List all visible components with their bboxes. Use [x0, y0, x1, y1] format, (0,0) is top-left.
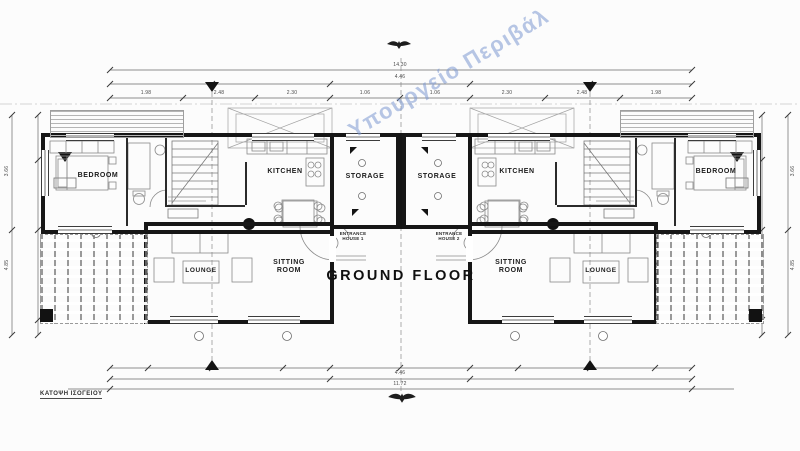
window — [502, 316, 554, 324]
partition — [165, 205, 245, 207]
house2-upper-block-walls — [468, 133, 761, 234]
dim-bottom-sub: 4.46 — [380, 370, 420, 376]
window — [248, 316, 300, 324]
window — [41, 150, 49, 196]
room-label-storage-right: STORAGE — [397, 173, 477, 181]
dim-right-2: 4.85 — [790, 250, 796, 280]
dim-right-1: 3.66 — [790, 156, 796, 186]
partition — [557, 205, 637, 207]
stamp-emblem-icon-top — [387, 41, 411, 49]
entrance-label-house2: ENTRANCE HOUSE 2 — [432, 231, 466, 241]
terrace-pergola-left — [40, 234, 148, 324]
partition — [674, 137, 676, 226]
partition — [126, 137, 128, 226]
canopy-slats-right — [620, 110, 754, 138]
dim-bottom-total: 11.72 — [380, 381, 420, 387]
dim-seg: 1.98 — [641, 90, 671, 96]
dim-left-2: 4.85 — [4, 250, 10, 280]
window — [252, 133, 314, 141]
dim-seg: 2.48 — [204, 90, 234, 96]
window — [584, 316, 632, 324]
dim-top-total: 14.30 — [380, 62, 420, 68]
pergola-column — [749, 309, 762, 322]
floor-plan-drawing: BEDROOM KITCHEN STORAGE STORAGE KITCHEN … — [0, 0, 800, 451]
dim-seg: 2.30 — [492, 90, 522, 96]
entrance-label-house1: ENTRANCE HOUSE 1 — [336, 231, 370, 241]
room-label-bedroom-left: BEDROOM — [58, 172, 138, 180]
room-label-lounge-left: LOUNGE — [183, 267, 219, 274]
room-label-kitchen-left: KITCHEN — [245, 168, 325, 176]
pergola-column — [40, 309, 53, 322]
stamp-emblem-icon-bottom — [388, 394, 416, 403]
canopy-slats-left — [50, 110, 184, 138]
window — [422, 133, 456, 141]
window — [58, 226, 112, 234]
dim-seg: 1.06 — [350, 90, 380, 96]
dim-seg: 2.30 — [277, 90, 307, 96]
page-title: GROUND FLOOR — [301, 268, 501, 285]
dim-left-1: 3.66 — [4, 156, 10, 186]
room-label-bedroom-right: BEDROOM — [676, 168, 756, 176]
terrace-pergola-right — [656, 234, 764, 324]
door-opening — [466, 236, 473, 262]
dim-seg: 2.48 — [567, 90, 597, 96]
dim-seg: 1.98 — [131, 90, 161, 96]
window — [488, 133, 550, 141]
room-label-lounge-right: LOUNGE — [583, 267, 619, 274]
room-label-kitchen-right: KITCHEN — [477, 168, 557, 176]
window — [170, 316, 218, 324]
window — [690, 226, 744, 234]
drawing-caption: ΚΑΤΟΨΗ ΙΣΟΓΕΙΟΥ — [40, 391, 102, 399]
room-label-storage-left: STORAGE — [325, 173, 405, 181]
partition — [635, 137, 637, 205]
house1-upper-block-walls — [41, 133, 334, 234]
door-opening — [329, 236, 336, 262]
partition — [165, 137, 167, 205]
